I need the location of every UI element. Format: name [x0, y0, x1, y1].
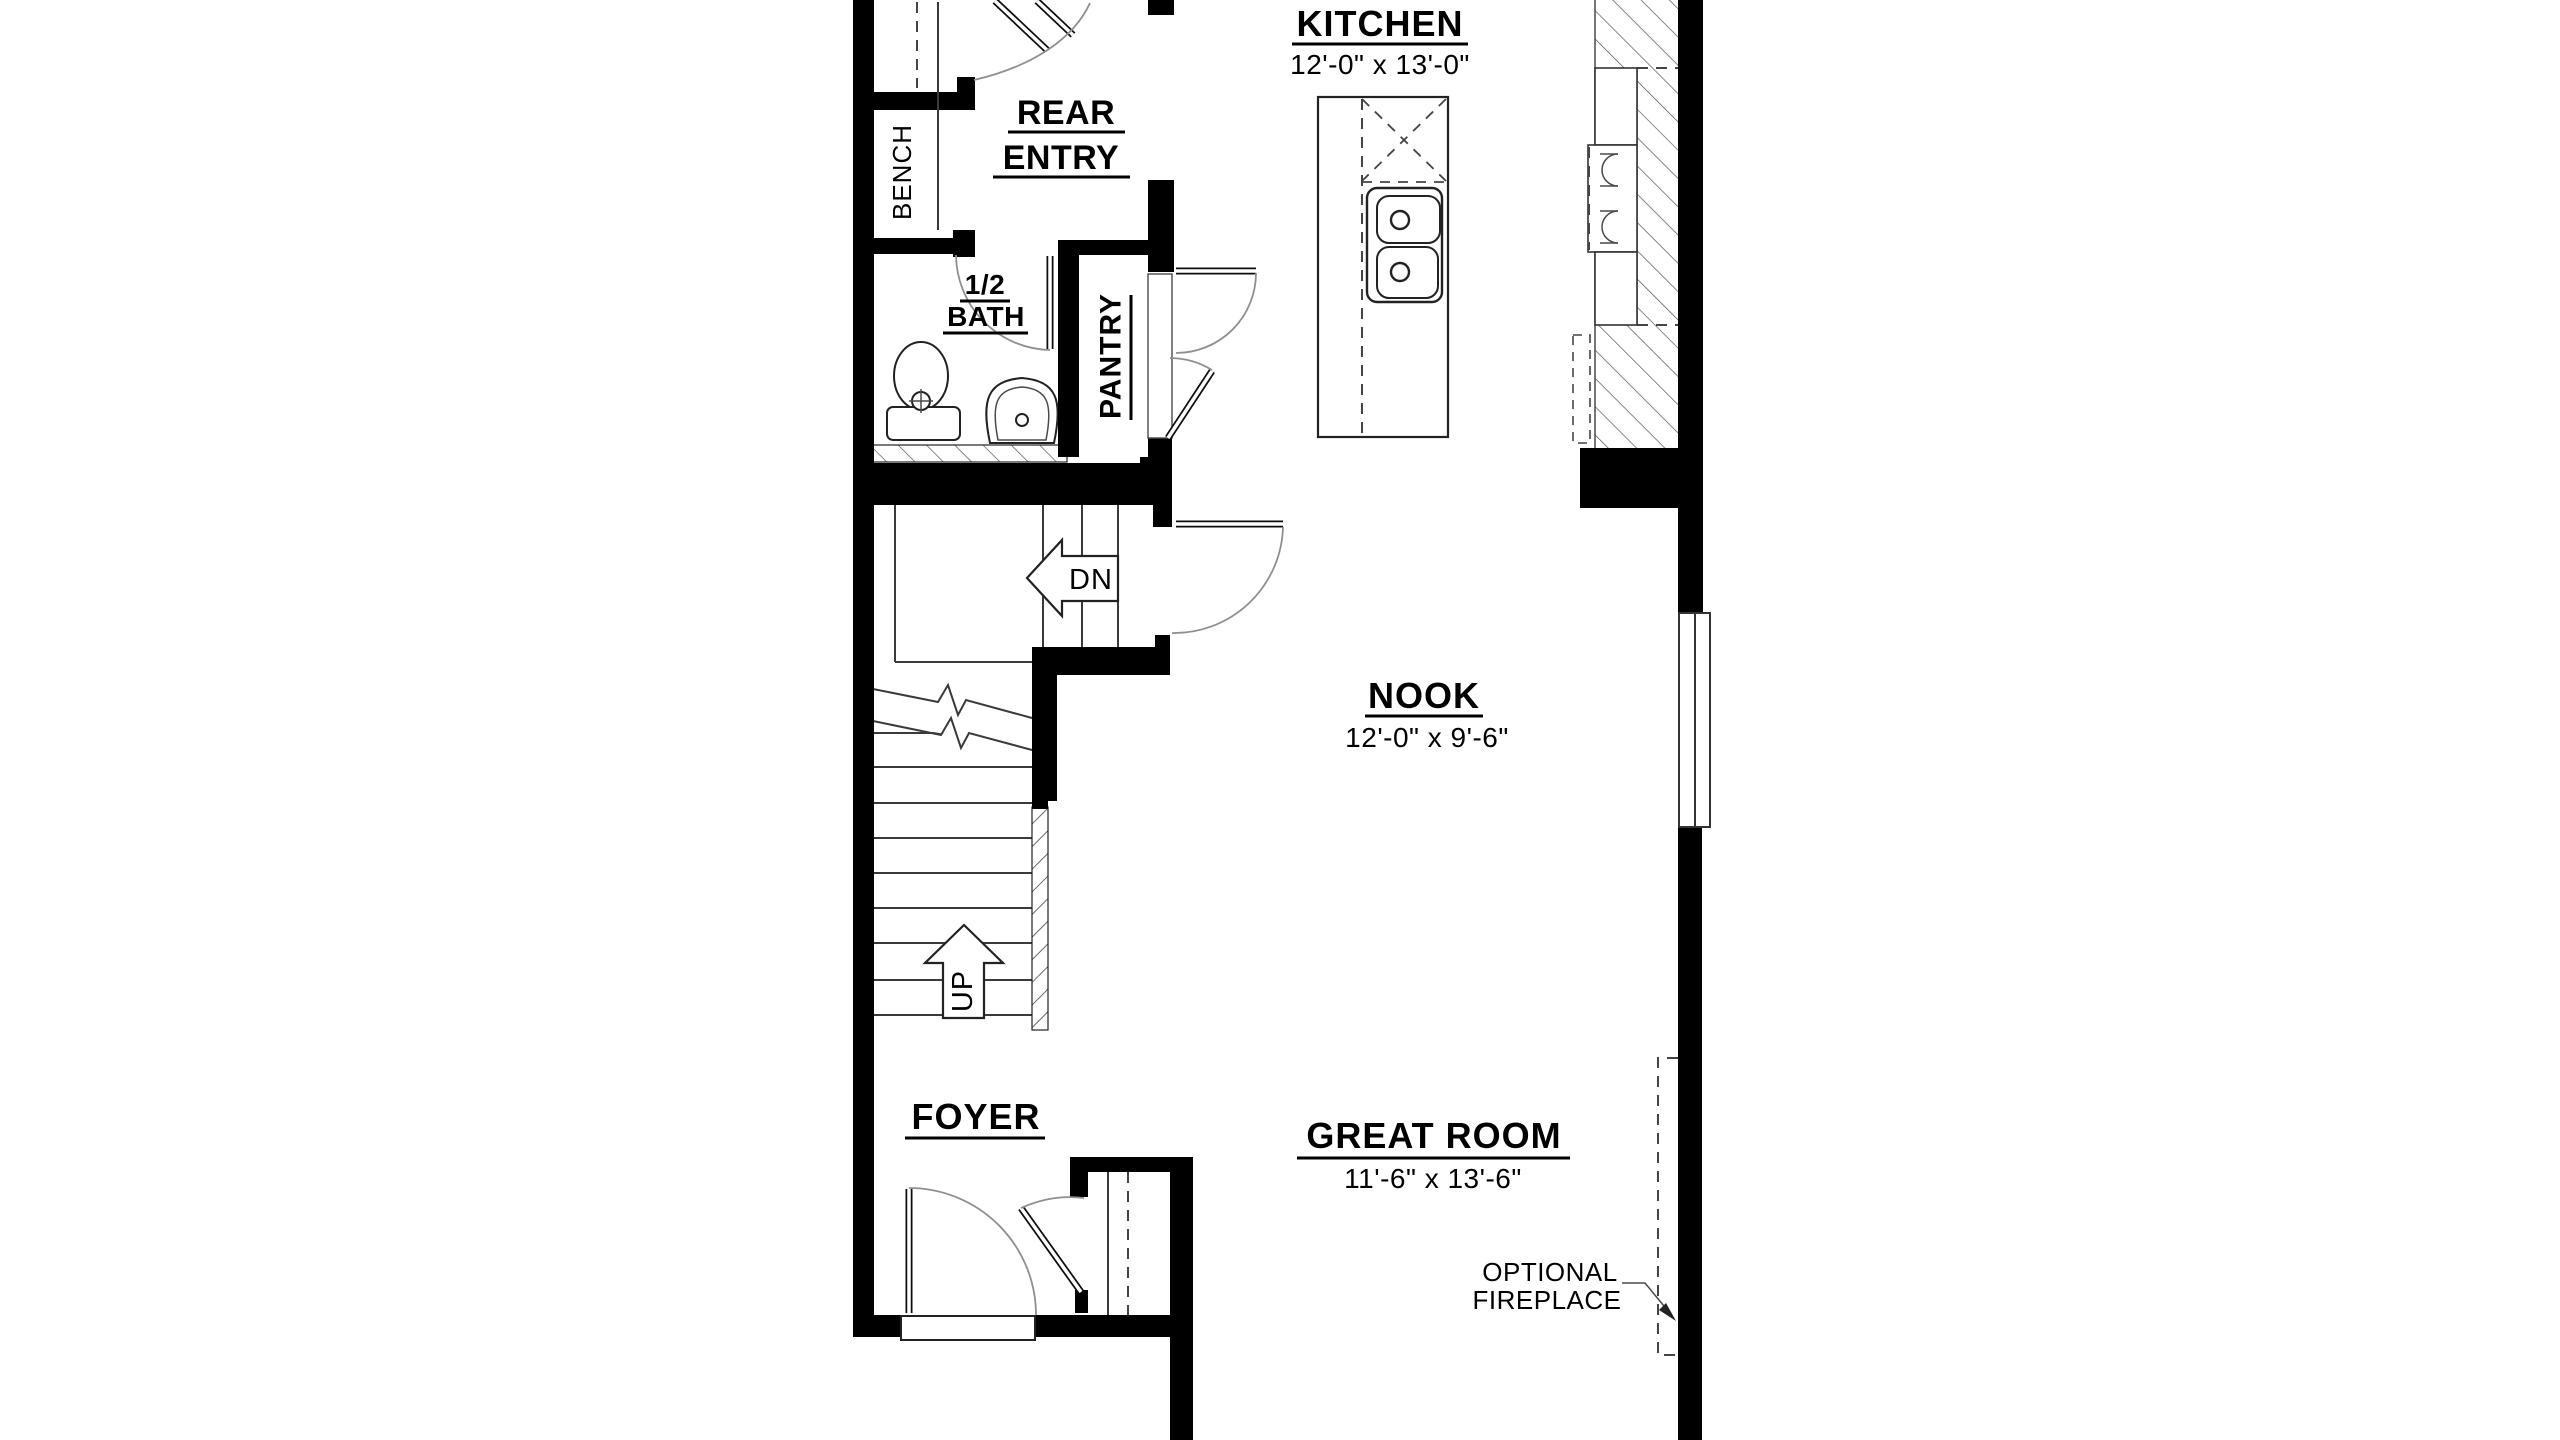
wall-left-exterior — [853, 0, 874, 1315]
half-bath-label-1: 1/2 — [965, 269, 1005, 300]
counter-hatch-top — [1595, 0, 1678, 68]
bench-label: BENCH — [887, 124, 917, 220]
counter-hatch-mid — [1637, 68, 1678, 325]
fireplace-note-2: FIREPLACE — [1473, 1285, 1622, 1315]
wall-closet-hinge-block — [1075, 1290, 1088, 1313]
wall-foyer-closet-stub — [1070, 1157, 1088, 1197]
toilet-tank-icon — [887, 407, 960, 440]
wall-front-left — [853, 1315, 901, 1337]
sink-drain-icon — [1016, 414, 1028, 426]
nook-window — [1679, 613, 1710, 827]
range-oven — [1588, 145, 1637, 252]
counter-section — [1595, 252, 1637, 325]
wall-nook-notch — [1155, 635, 1170, 647]
nook-label: NOOK — [1368, 675, 1480, 716]
wall-pantry-hinge-stub — [1148, 438, 1172, 458]
wall-right-exterior-mid — [1678, 508, 1703, 613]
fireplace-note-1: OPTIONAL — [1482, 1257, 1617, 1287]
wall-closet-bottom — [853, 92, 975, 110]
sink-drain-icon — [1391, 263, 1409, 281]
wall-landing-south — [1032, 647, 1170, 675]
wall-railing-cap — [1032, 801, 1048, 809]
doorway-jamb — [1148, 274, 1172, 438]
front-door-threshold — [901, 1316, 1035, 1340]
half-bath-label-2: BATH — [947, 301, 1025, 332]
wall-foyer-closet-bottom — [1035, 1315, 1170, 1337]
canvas-background — [0, 0, 2560, 1440]
great-room-label: GREAT ROOM — [1306, 1115, 1561, 1156]
wall-bench-bath — [853, 238, 957, 254]
wall-bench-bath-cap — [953, 230, 975, 257]
pantry-label: PANTRY — [1095, 293, 1128, 419]
stairs-down-label: DN — [1069, 564, 1113, 596]
wall-stair-side — [1032, 675, 1057, 801]
kitchen-island — [1318, 97, 1448, 437]
wall-right-exterior-bottom — [1678, 827, 1702, 1440]
great-room-dims: 11'-6" x 13'-6" — [1344, 1163, 1522, 1194]
kitchen-dims: 12'-0" x 13'-0" — [1290, 49, 1470, 80]
sink-drain-icon — [1391, 211, 1409, 229]
bath-ledge — [873, 445, 1067, 462]
stair-railing — [1032, 807, 1048, 1030]
island-double-sink — [1367, 188, 1442, 302]
wall-closet-stub — [957, 77, 975, 93]
wall-kitchen-divider — [1148, 180, 1174, 272]
stairs-up-label: UP — [947, 970, 979, 1012]
floor-plan-drawing: DN UP — [0, 0, 2560, 1440]
wall-foyer-closet-right — [1170, 1157, 1193, 1440]
refrigerator — [1595, 68, 1637, 145]
nook-dims: 12'-0" x 9'-6" — [1345, 722, 1509, 753]
wall-kitchen-divider-stub — [1148, 0, 1174, 15]
counter-hatch-bottom — [1595, 325, 1680, 448]
rear-entry-label-2: ENTRY — [1003, 139, 1119, 177]
floor-plan-page: DN UP — [0, 0, 2560, 1440]
wall-kitchen-nook-block — [1580, 448, 1703, 508]
kitchen-label: KITCHEN — [1297, 3, 1464, 44]
foyer-label: FOYER — [911, 1096, 1040, 1137]
rear-entry-label-1: REAR — [1017, 94, 1115, 132]
wall-right-exterior-top — [1678, 0, 1703, 448]
wall-landing-stub — [1153, 505, 1172, 527]
wall-bath-south — [853, 463, 1172, 505]
upper-cabinet-dashed — [1573, 335, 1590, 443]
wall-pantry-left — [1058, 255, 1079, 457]
